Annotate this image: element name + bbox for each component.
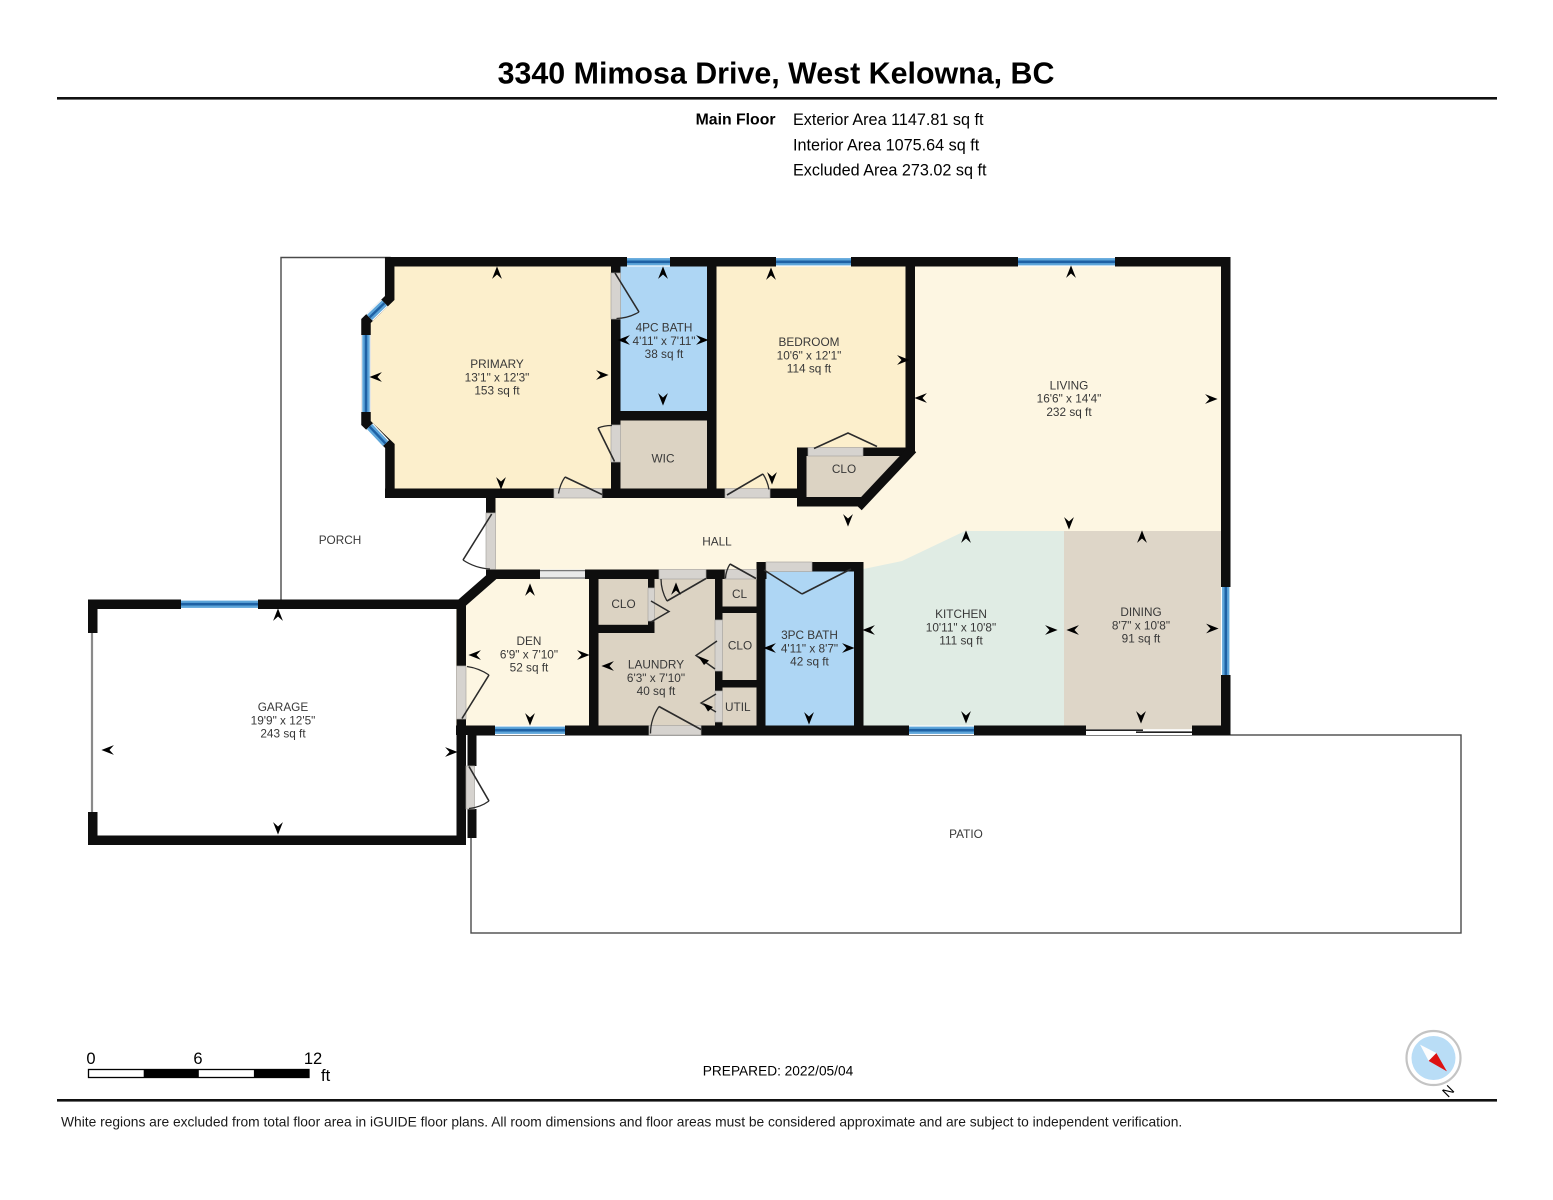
svg-text:LAUNDRY: LAUNDRY — [628, 658, 684, 672]
svg-text:CLO: CLO — [832, 462, 856, 476]
svg-text:PATIO: PATIO — [949, 827, 983, 841]
svg-text:PORCH: PORCH — [319, 533, 362, 547]
svg-text:Excluded Area 273.02 sq ft: Excluded Area 273.02 sq ft — [793, 162, 987, 180]
svg-text:6'9" x 7'10": 6'9" x 7'10" — [500, 647, 558, 661]
svg-text:Exterior Area 1147.81 sq ft: Exterior Area 1147.81 sq ft — [793, 111, 984, 129]
svg-text:52 sq ft: 52 sq ft — [510, 661, 549, 675]
svg-text:19'9" x 12'5": 19'9" x 12'5" — [251, 713, 316, 727]
svg-text:6'3" x 7'10": 6'3" x 7'10" — [627, 671, 685, 685]
svg-text:GARAGE: GARAGE — [258, 700, 309, 714]
svg-text:10'11" x 10'8": 10'11" x 10'8" — [926, 620, 996, 634]
svg-text:Interior Area 1075.64 sq ft: Interior Area 1075.64 sq ft — [793, 137, 980, 155]
svg-text:CLO: CLO — [611, 597, 635, 611]
svg-text:CL: CL — [732, 587, 748, 601]
svg-text:114 sq ft: 114 sq ft — [787, 362, 832, 376]
svg-text:8'7" x 10'8": 8'7" x 10'8" — [1112, 618, 1170, 632]
svg-text:38 sq ft: 38 sq ft — [645, 347, 684, 361]
svg-text:4'11" x 8'7": 4'11" x 8'7" — [781, 641, 838, 655]
svg-text:UTIL: UTIL — [725, 700, 751, 714]
svg-text:WIC: WIC — [652, 452, 675, 466]
svg-text:40 sq ft: 40 sq ft — [637, 684, 676, 698]
svg-text:PRIMARY: PRIMARY — [470, 357, 524, 371]
svg-text:0: 0 — [86, 1050, 95, 1068]
svg-text:White regions are excluded fro: White regions are excluded from total fl… — [61, 1115, 1182, 1130]
svg-text:DINING: DINING — [1120, 605, 1161, 619]
svg-text:16'6" x 14'4": 16'6" x 14'4" — [1037, 392, 1102, 406]
svg-text:12: 12 — [304, 1050, 322, 1068]
svg-text:ft: ft — [321, 1067, 331, 1085]
svg-text:BEDROOM: BEDROOM — [779, 335, 840, 349]
svg-text:232 sq ft: 232 sq ft — [1046, 405, 1092, 419]
svg-text:111 sq ft: 111 sq ft — [939, 634, 983, 648]
svg-text:4PC BATH: 4PC BATH — [636, 321, 693, 335]
svg-text:243 sq ft: 243 sq ft — [260, 727, 306, 741]
svg-text:CLO: CLO — [728, 638, 752, 652]
svg-text:HALL: HALL — [702, 534, 732, 548]
svg-text:LIVING: LIVING — [1050, 378, 1089, 392]
svg-text:3340 Mimosa Drive, West Kelown: 3340 Mimosa Drive, West Kelowna, BC — [498, 57, 1055, 91]
svg-text:6: 6 — [193, 1050, 202, 1068]
svg-text:3PC BATH: 3PC BATH — [781, 628, 838, 642]
svg-text:Main Floor: Main Floor — [696, 112, 776, 129]
svg-text:KITCHEN: KITCHEN — [935, 607, 987, 621]
svg-text:153 sq ft: 153 sq ft — [474, 384, 520, 398]
svg-text:91 sq ft: 91 sq ft — [1122, 632, 1161, 646]
svg-text:DEN: DEN — [517, 634, 542, 648]
svg-text:13'1" x 12'3": 13'1" x 12'3" — [465, 370, 530, 384]
svg-text:4'11" x 7'11": 4'11" x 7'11" — [633, 334, 696, 348]
svg-text:10'6" x 12'1": 10'6" x 12'1" — [777, 348, 842, 362]
svg-text:42 sq ft: 42 sq ft — [790, 655, 829, 669]
svg-text:PREPARED: 2022/05/04: PREPARED: 2022/05/04 — [703, 1064, 854, 1079]
